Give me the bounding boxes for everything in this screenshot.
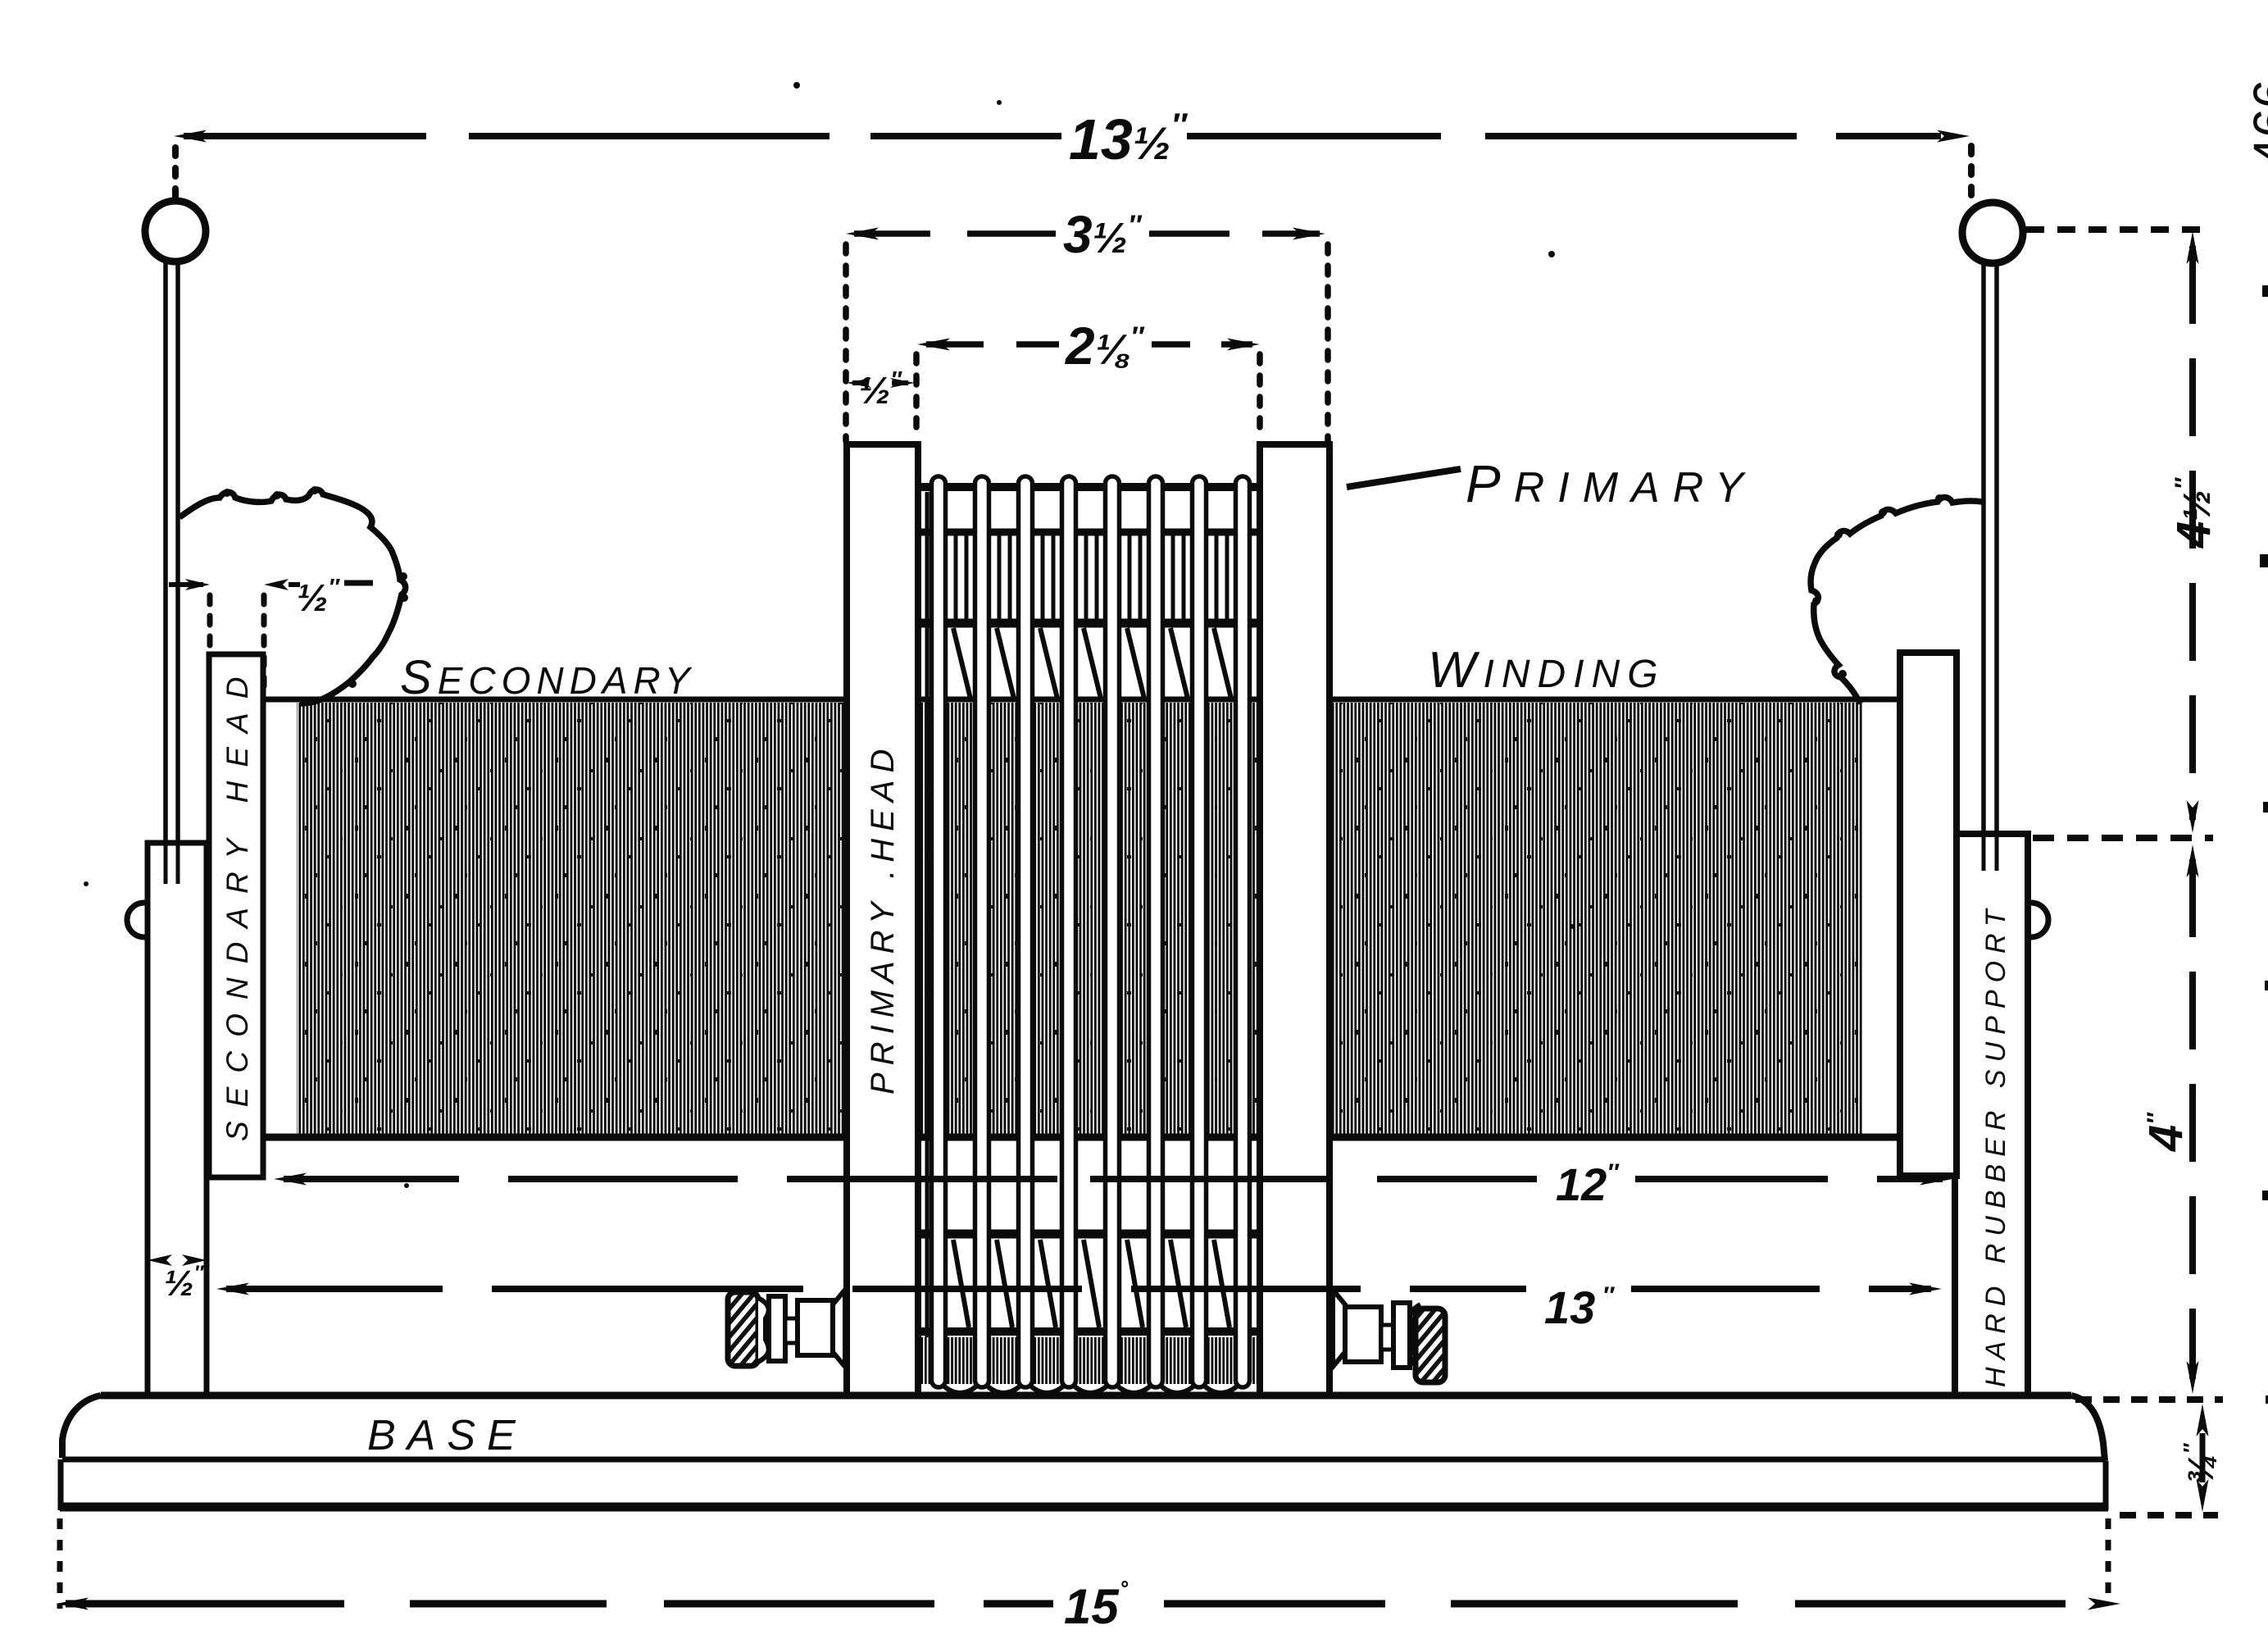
svg-text:SECONDARY: SECONDARY xyxy=(400,651,696,704)
svg-text:PRIMARY .HEAD: PRIMARY .HEAD xyxy=(865,742,901,1095)
svg-text:SECONDARY HEAD: SECONDARY HEAD xyxy=(220,663,254,1141)
svg-text:466: 466 xyxy=(2243,80,2268,167)
svg-text:BASE: BASE xyxy=(367,1412,527,1459)
svg-text:13½″: 13½″ xyxy=(1069,107,1189,171)
svg-text:HARD RUBBER SUPPORT: HARD RUBBER SUPPORT xyxy=(1980,902,2011,1387)
